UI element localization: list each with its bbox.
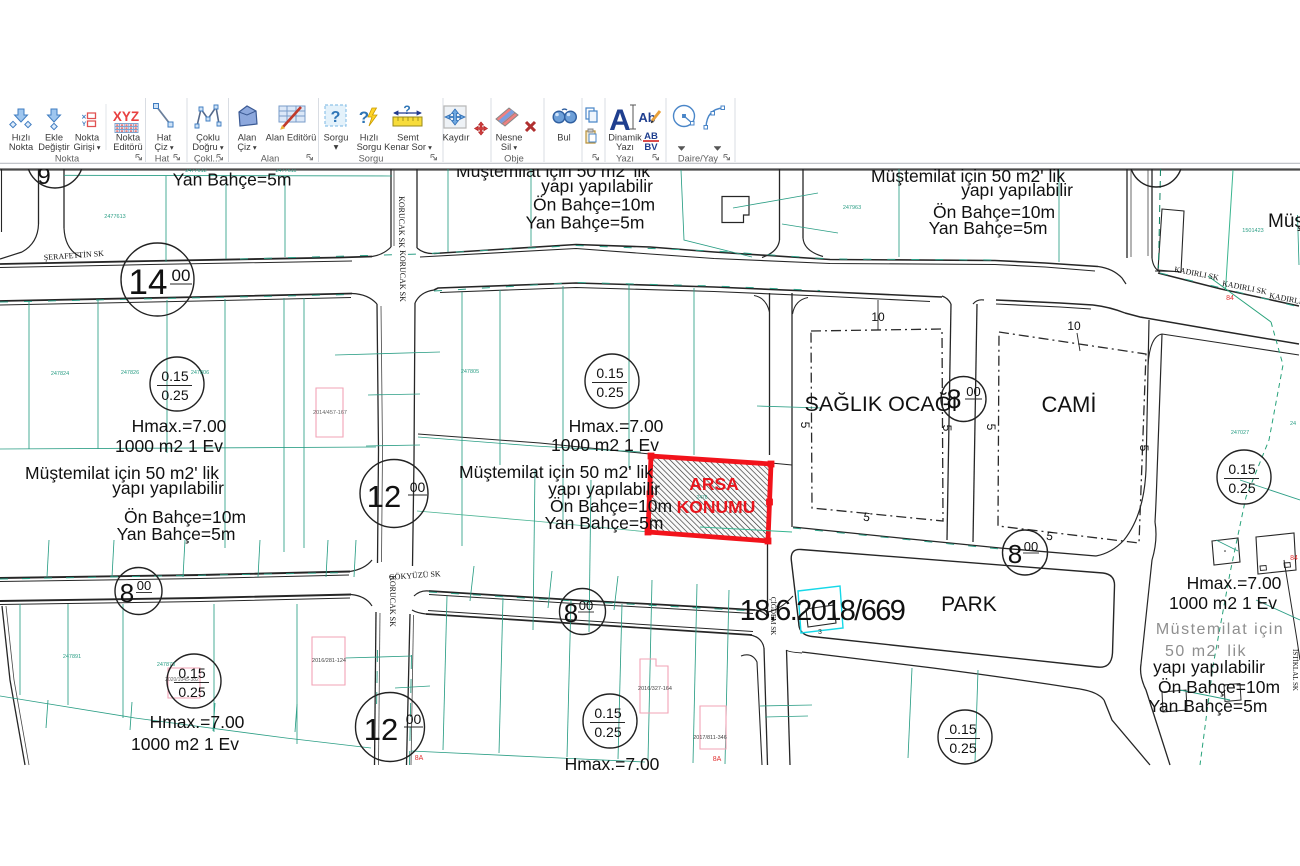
svg-text:00: 00 <box>966 384 980 399</box>
svg-text:00: 00 <box>410 479 426 495</box>
svg-text:yapı yapılabilir: yapı yapılabilir <box>961 180 1073 200</box>
svg-text:?: ? <box>403 103 410 117</box>
svg-text:KORUCAK SK: KORUCAK SK <box>397 196 406 248</box>
svg-text:8: 8 <box>1008 539 1022 569</box>
svg-text:0.15: 0.15 <box>1228 461 1255 477</box>
svg-text:0.15: 0.15 <box>594 705 621 721</box>
svg-text:8A: 8A <box>415 755 424 762</box>
svg-text:Girişi ▾: Girişi ▾ <box>73 142 100 152</box>
svg-text:5: 5 <box>1137 445 1151 452</box>
svg-text:1000 m2 1 Ev: 1000 m2 1 Ev <box>115 436 223 456</box>
svg-text:Bul: Bul <box>557 133 570 143</box>
svg-text:yapı yapılabilir: yapı yapılabilir <box>112 478 224 498</box>
svg-text:?: ? <box>359 108 369 127</box>
svg-text:GÖKYÜZÜ SK: GÖKYÜZÜ SK <box>389 569 442 582</box>
svg-text:24: 24 <box>1290 421 1296 427</box>
svg-text:Ön Bahçe=10m: Ön Bahçe=10m <box>1158 677 1280 697</box>
svg-text:Ön Bahçe=10m: Ön Bahçe=10m <box>533 195 655 215</box>
svg-text:Hmax.=7.00: Hmax.=7.00 <box>1187 573 1282 593</box>
svg-text:KORUCAK SK: KORUCAK SK <box>398 250 407 302</box>
svg-text:Doğru ▾: Doğru ▾ <box>192 142 223 152</box>
svg-text:Çiz ▾: Çiz ▾ <box>154 142 174 152</box>
svg-text:247891: 247891 <box>63 654 81 660</box>
svg-text:Nokta: Nokta <box>9 142 34 152</box>
svg-text:Nokta: Nokta <box>55 154 80 164</box>
svg-text:Yan Bahçe=5m: Yan Bahçe=5m <box>1149 696 1268 716</box>
svg-text:ÇİĞDEM SK: ÇİĞDEM SK <box>769 597 777 635</box>
svg-text:Yan Bahçe=5m: Yan Bahçe=5m <box>526 213 645 233</box>
svg-text:0.15: 0.15 <box>596 365 623 381</box>
svg-text:▾: ▾ <box>334 142 339 152</box>
svg-text:2016/327-164: 2016/327-164 <box>638 686 672 692</box>
svg-text:0.25: 0.25 <box>161 387 188 403</box>
svg-text:İSTİKLAL SK: İSTİKLAL SK <box>1291 649 1299 691</box>
svg-text:14: 14 <box>129 263 168 302</box>
svg-text:5: 5 <box>1045 529 1054 544</box>
svg-text:1501423: 1501423 <box>1242 228 1263 234</box>
svg-text:Yan Bahçe=5m: Yan Bahçe=5m <box>545 513 664 533</box>
svg-text:KORUCAK SK: KORUCAK SK <box>388 575 397 627</box>
svg-text:Sorgu: Sorgu <box>359 154 384 164</box>
svg-text:Alan: Alan <box>261 154 280 164</box>
svg-text:1000 m2 1 Ev: 1000 m2 1 Ev <box>1169 593 1277 613</box>
svg-text:0.25: 0.25 <box>596 384 623 400</box>
svg-text:Hat: Hat <box>155 154 170 164</box>
svg-text:0.15: 0.15 <box>161 368 188 384</box>
svg-text:2477613: 2477613 <box>104 214 125 220</box>
svg-text:1000 m2 1 Ev: 1000 m2 1 Ev <box>131 734 239 754</box>
svg-text:5: 5 <box>798 422 812 429</box>
svg-text:PARK: PARK <box>941 593 997 616</box>
svg-text:10: 10 <box>1067 319 1081 333</box>
svg-text:ARSA: ARSA <box>689 474 739 494</box>
svg-text:84: 84 <box>1290 555 1298 562</box>
svg-text:0.15: 0.15 <box>178 665 205 681</box>
svg-text:247963: 247963 <box>843 205 861 211</box>
svg-text:00: 00 <box>579 598 593 613</box>
svg-text:00: 00 <box>406 711 422 727</box>
svg-text:Kaydır: Kaydır <box>443 133 470 143</box>
svg-text:Yazı: Yazı <box>616 142 634 152</box>
svg-text:5: 5 <box>862 510 871 525</box>
svg-text:Y: Y <box>82 121 87 128</box>
svg-text:Çokl...: Çokl... <box>194 154 220 164</box>
svg-text:Daire/Yay: Daire/Yay <box>678 154 718 164</box>
svg-text:12: 12 <box>367 479 401 514</box>
svg-text:Yazı: Yazı <box>616 154 634 164</box>
svg-text:yapı yapılabilir: yapı yapılabilir <box>541 176 653 196</box>
svg-text:8A: 8A <box>713 756 722 763</box>
svg-text:Çiz ▾: Çiz ▾ <box>237 142 257 152</box>
svg-text:8: 8 <box>564 598 578 628</box>
svg-text:12: 12 <box>364 712 398 747</box>
svg-text:Kenar Sor ▾: Kenar Sor ▾ <box>384 142 432 152</box>
svg-text:5: 5 <box>940 425 954 432</box>
svg-text:18.6.2018/669: 18.6.2018/669 <box>740 595 905 627</box>
svg-text:SAĞLIK OCAĞI: SAĞLIK OCAĞI <box>805 391 958 416</box>
svg-text:Obje: Obje <box>504 154 524 164</box>
svg-text:0.25: 0.25 <box>594 724 621 740</box>
svg-text:00: 00 <box>1024 539 1038 554</box>
svg-text:0.25: 0.25 <box>1228 480 1255 496</box>
svg-text:2016/281-124: 2016/281-124 <box>312 658 346 664</box>
svg-text:Editörü: Editörü <box>113 142 142 152</box>
svg-text:KADIRLI: KADIRLI <box>1268 291 1300 306</box>
svg-text:00: 00 <box>172 266 191 285</box>
svg-text:84: 84 <box>1226 295 1234 302</box>
svg-text:?: ? <box>331 109 341 126</box>
svg-text:0.25: 0.25 <box>949 740 976 756</box>
svg-text:247027: 247027 <box>1231 430 1249 436</box>
svg-text:50 m2' lik: 50 m2' lik <box>1165 643 1247 660</box>
svg-text:247805: 247805 <box>461 369 479 375</box>
svg-text:8: 8 <box>120 578 134 608</box>
svg-text:ŞERAFETTİN SK: ŞERAFETTİN SK <box>43 249 104 262</box>
svg-text:KONUMU: KONUMU <box>677 497 756 517</box>
svg-text:KADIRLI SK: KADIRLI SK <box>1173 265 1219 282</box>
svg-text:XYZ: XYZ <box>113 109 139 124</box>
svg-text:Müşt: Müşt <box>1268 211 1300 232</box>
svg-text:247806: 247806 <box>191 370 209 376</box>
svg-text:0.15: 0.15 <box>949 721 976 737</box>
svg-text:CAMİ: CAMİ <box>1042 392 1097 417</box>
svg-text:Hmax.=7.00: Hmax.=7.00 <box>150 712 245 732</box>
svg-text:3: 3 <box>818 629 822 636</box>
svg-text:2017/811-346: 2017/811-346 <box>693 735 727 741</box>
svg-text:Değiştir: Değiştir <box>38 142 70 152</box>
svg-text:Hmax.=7.00: Hmax.=7.00 <box>565 754 660 774</box>
svg-text:247873: 247873 <box>157 662 175 668</box>
svg-text:9: 9 <box>37 163 50 190</box>
svg-text:BV: BV <box>644 142 658 153</box>
svg-text:yapı yapılabilir: yapı yapılabilir <box>1153 657 1265 677</box>
svg-text:Hmax.=7.00: Hmax.=7.00 <box>132 416 227 436</box>
svg-text:247824: 247824 <box>51 371 69 377</box>
svg-text:Hmax.=7.00: Hmax.=7.00 <box>569 416 664 436</box>
svg-text:1000 m2 1 Ev: 1000 m2 1 Ev <box>551 435 659 455</box>
svg-text:2014/457-167: 2014/457-167 <box>313 410 347 416</box>
svg-text:Sil ▾: Sil ▾ <box>501 142 517 152</box>
svg-text:Yan Bahçe=5m: Yan Bahçe=5m <box>117 524 236 544</box>
svg-text:00: 00 <box>137 578 151 593</box>
svg-text:0.25: 0.25 <box>178 684 205 700</box>
svg-text:Sorgu: Sorgu <box>357 142 382 152</box>
svg-text:Müstemilat için: Müstemilat için <box>1156 621 1284 638</box>
svg-text:5: 5 <box>984 424 998 431</box>
svg-text:Yan Bahçe=5m: Yan Bahçe=5m <box>929 218 1048 238</box>
svg-text:Alan Editörü: Alan Editörü <box>266 133 317 143</box>
svg-text:247826: 247826 <box>121 370 139 376</box>
